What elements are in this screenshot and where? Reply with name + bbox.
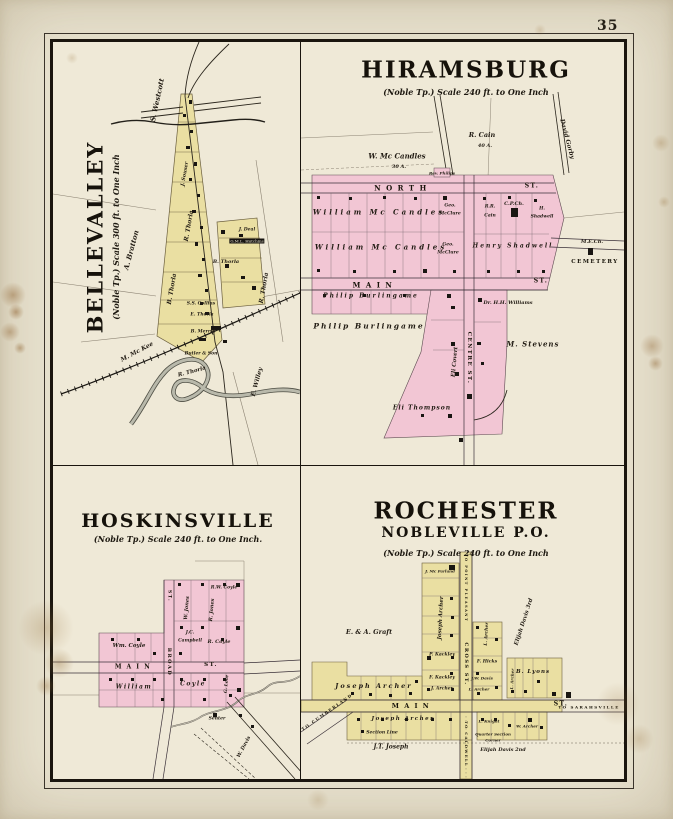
- map-label: J.T. Joseph: [374, 744, 409, 751]
- paper-stain: [306, 790, 330, 810]
- rochester-po-subtitle: NOBLEVILLE P.O.: [381, 525, 550, 541]
- hiramsburg-subtitle: (Noble Tp.) Scale 240 ft. to One Inch: [383, 87, 549, 97]
- map-label: M A I N: [392, 702, 431, 710]
- map-label: Butler & Son: [185, 352, 218, 357]
- map-label: McClure: [437, 251, 459, 256]
- map-label: J. Archer: [431, 687, 453, 692]
- map-label: Philip Burlingame: [313, 322, 424, 331]
- map-label: J. Deal: [239, 228, 255, 233]
- map-label: Geo.: [444, 204, 455, 209]
- map-label: B. Lyons: [516, 669, 550, 675]
- hiramsburg-map-art: [301, 42, 624, 465]
- map-label: ST.: [534, 278, 549, 285]
- map-label: Shadwell: [531, 215, 554, 220]
- panel-hoskinsville: HOSKINSVILLE (Noble Tp.) Scale 240 ft. t…: [53, 466, 301, 779]
- map-label: Section Line: [366, 731, 398, 736]
- map-label: TO POINT PLEASANT: [464, 554, 468, 622]
- map-label: Campbell: [178, 639, 202, 644]
- map-label: Philip Burlingame: [323, 293, 419, 300]
- map-label: M A I N: [353, 281, 394, 290]
- panel-hiramsburg: HIRAMSBURG (Noble Tp.) Scale 240 ft. to …: [301, 42, 624, 466]
- map-label: R. Cain: [469, 131, 496, 139]
- map-label: F. Hicks: [477, 660, 497, 665]
- bellevalley-subtitle: (Noble Tp.) Scale 300 ft. to One Inch: [111, 154, 121, 320]
- map-label: J. Mc Farland: [425, 569, 455, 574]
- map-label: E. & A. Graft: [346, 628, 392, 636]
- paper-stain: [640, 334, 664, 358]
- map-label: CENTRE ST.: [466, 332, 472, 385]
- panel-rochester: ROCHESTER NOBLEVILLE P.O. (Noble Tp.) Sc…: [301, 466, 624, 779]
- map-label: M. Stevens: [507, 340, 560, 349]
- map-label: William Mc Candles: [313, 208, 445, 217]
- map-label: M A I N: [115, 664, 151, 671]
- map-label: Joseph Archer: [335, 682, 412, 690]
- map-label: Elijah Davis 2nd: [480, 747, 526, 753]
- hoskinsville-subtitle: (Noble Tp.) Scale 240 ft. to One Inch.: [94, 534, 262, 544]
- map-label: W. Mc Candles: [368, 152, 425, 161]
- map-label: Rev. Philips: [429, 171, 455, 176]
- map-label: ST.: [525, 183, 540, 190]
- map-label: William: [116, 684, 153, 691]
- map-label: Eli Thompson: [393, 405, 451, 412]
- map-label: Quarter Section: [475, 732, 511, 737]
- map-label: ST.: [204, 662, 218, 668]
- map-label: J.C.: [186, 631, 194, 636]
- bellevalley-title: BELLEVALLEY: [83, 141, 108, 334]
- paper-stain: [0, 282, 26, 308]
- map-label: J.W. Davis: [471, 676, 493, 681]
- panel-bellevalley: BELLEVALLEY (Noble Tp.) Scale 300 ft. to…: [53, 42, 301, 466]
- paper-stain: [8, 304, 24, 320]
- map-label: ST.: [167, 590, 172, 602]
- paper-stain: [658, 196, 670, 208]
- paper-stain: [652, 134, 670, 152]
- map-label: E. Thorla: [190, 313, 213, 318]
- map-label: William Mc Candles: [315, 243, 447, 252]
- map-label: 30 A.: [392, 164, 406, 170]
- map-label: Coyle: [180, 681, 206, 688]
- paper-stain: [648, 356, 663, 371]
- map-label: W. Archer: [516, 724, 538, 729]
- map-label: R. Coyle: [208, 639, 231, 645]
- map-label: 40 A.: [478, 143, 492, 149]
- map-label: G.M.L. Hutchins: [229, 239, 264, 244]
- map-label: H.: [539, 207, 545, 212]
- map-label: Henry Shadwell: [473, 243, 554, 250]
- map-label: CROSS ST.: [463, 642, 469, 685]
- rochester-title: ROCHESTER: [373, 498, 558, 525]
- map-label: S.S. Collins: [187, 302, 215, 307]
- map-label: TO CALDWELL: [464, 721, 468, 767]
- map-label: BROAD: [166, 648, 172, 676]
- map-label: Joseph Archer: [371, 716, 434, 722]
- map-label: Corner: [485, 738, 501, 743]
- map-label: B. Thorla: [213, 259, 239, 265]
- map-label: McClure: [439, 212, 461, 217]
- map-label: Cain: [484, 214, 495, 219]
- map-label: R.R.: [485, 205, 496, 210]
- map-label: M.E.Ch.: [581, 239, 603, 245]
- hiramsburg-title: HIRAMSBURG: [361, 57, 571, 84]
- map-label: Senter: [209, 717, 226, 722]
- map-label: C.P.Ch.: [504, 201, 524, 207]
- atlas-page: 35: [0, 0, 673, 819]
- map-label: L. Knight: [478, 719, 499, 724]
- map-label: P. Kackley: [429, 653, 455, 658]
- map-label: N O R T H: [374, 184, 427, 193]
- hoskinsville-title: HOSKINSVILLE: [81, 510, 275, 532]
- map-label: B. Merrill: [191, 330, 216, 335]
- map-frame: BELLEVALLEY (Noble Tp.) Scale 300 ft. to…: [50, 39, 627, 782]
- map-label: Geo.: [442, 243, 453, 248]
- map-label: Dr. H.H. Williams: [483, 300, 532, 306]
- map-label: L. Archer: [469, 687, 490, 692]
- map-label: TO SARAHSVILLE: [558, 705, 620, 710]
- map-label: R.W. Coyle: [211, 586, 238, 591]
- map-label: CEMETERY: [571, 259, 618, 265]
- paper-stain: [14, 342, 26, 354]
- map-label: Wm. Coyle: [113, 643, 146, 649]
- page-number: 35: [597, 18, 618, 34]
- map-label: F. Kackley: [429, 676, 455, 681]
- paper-stain: [0, 322, 20, 342]
